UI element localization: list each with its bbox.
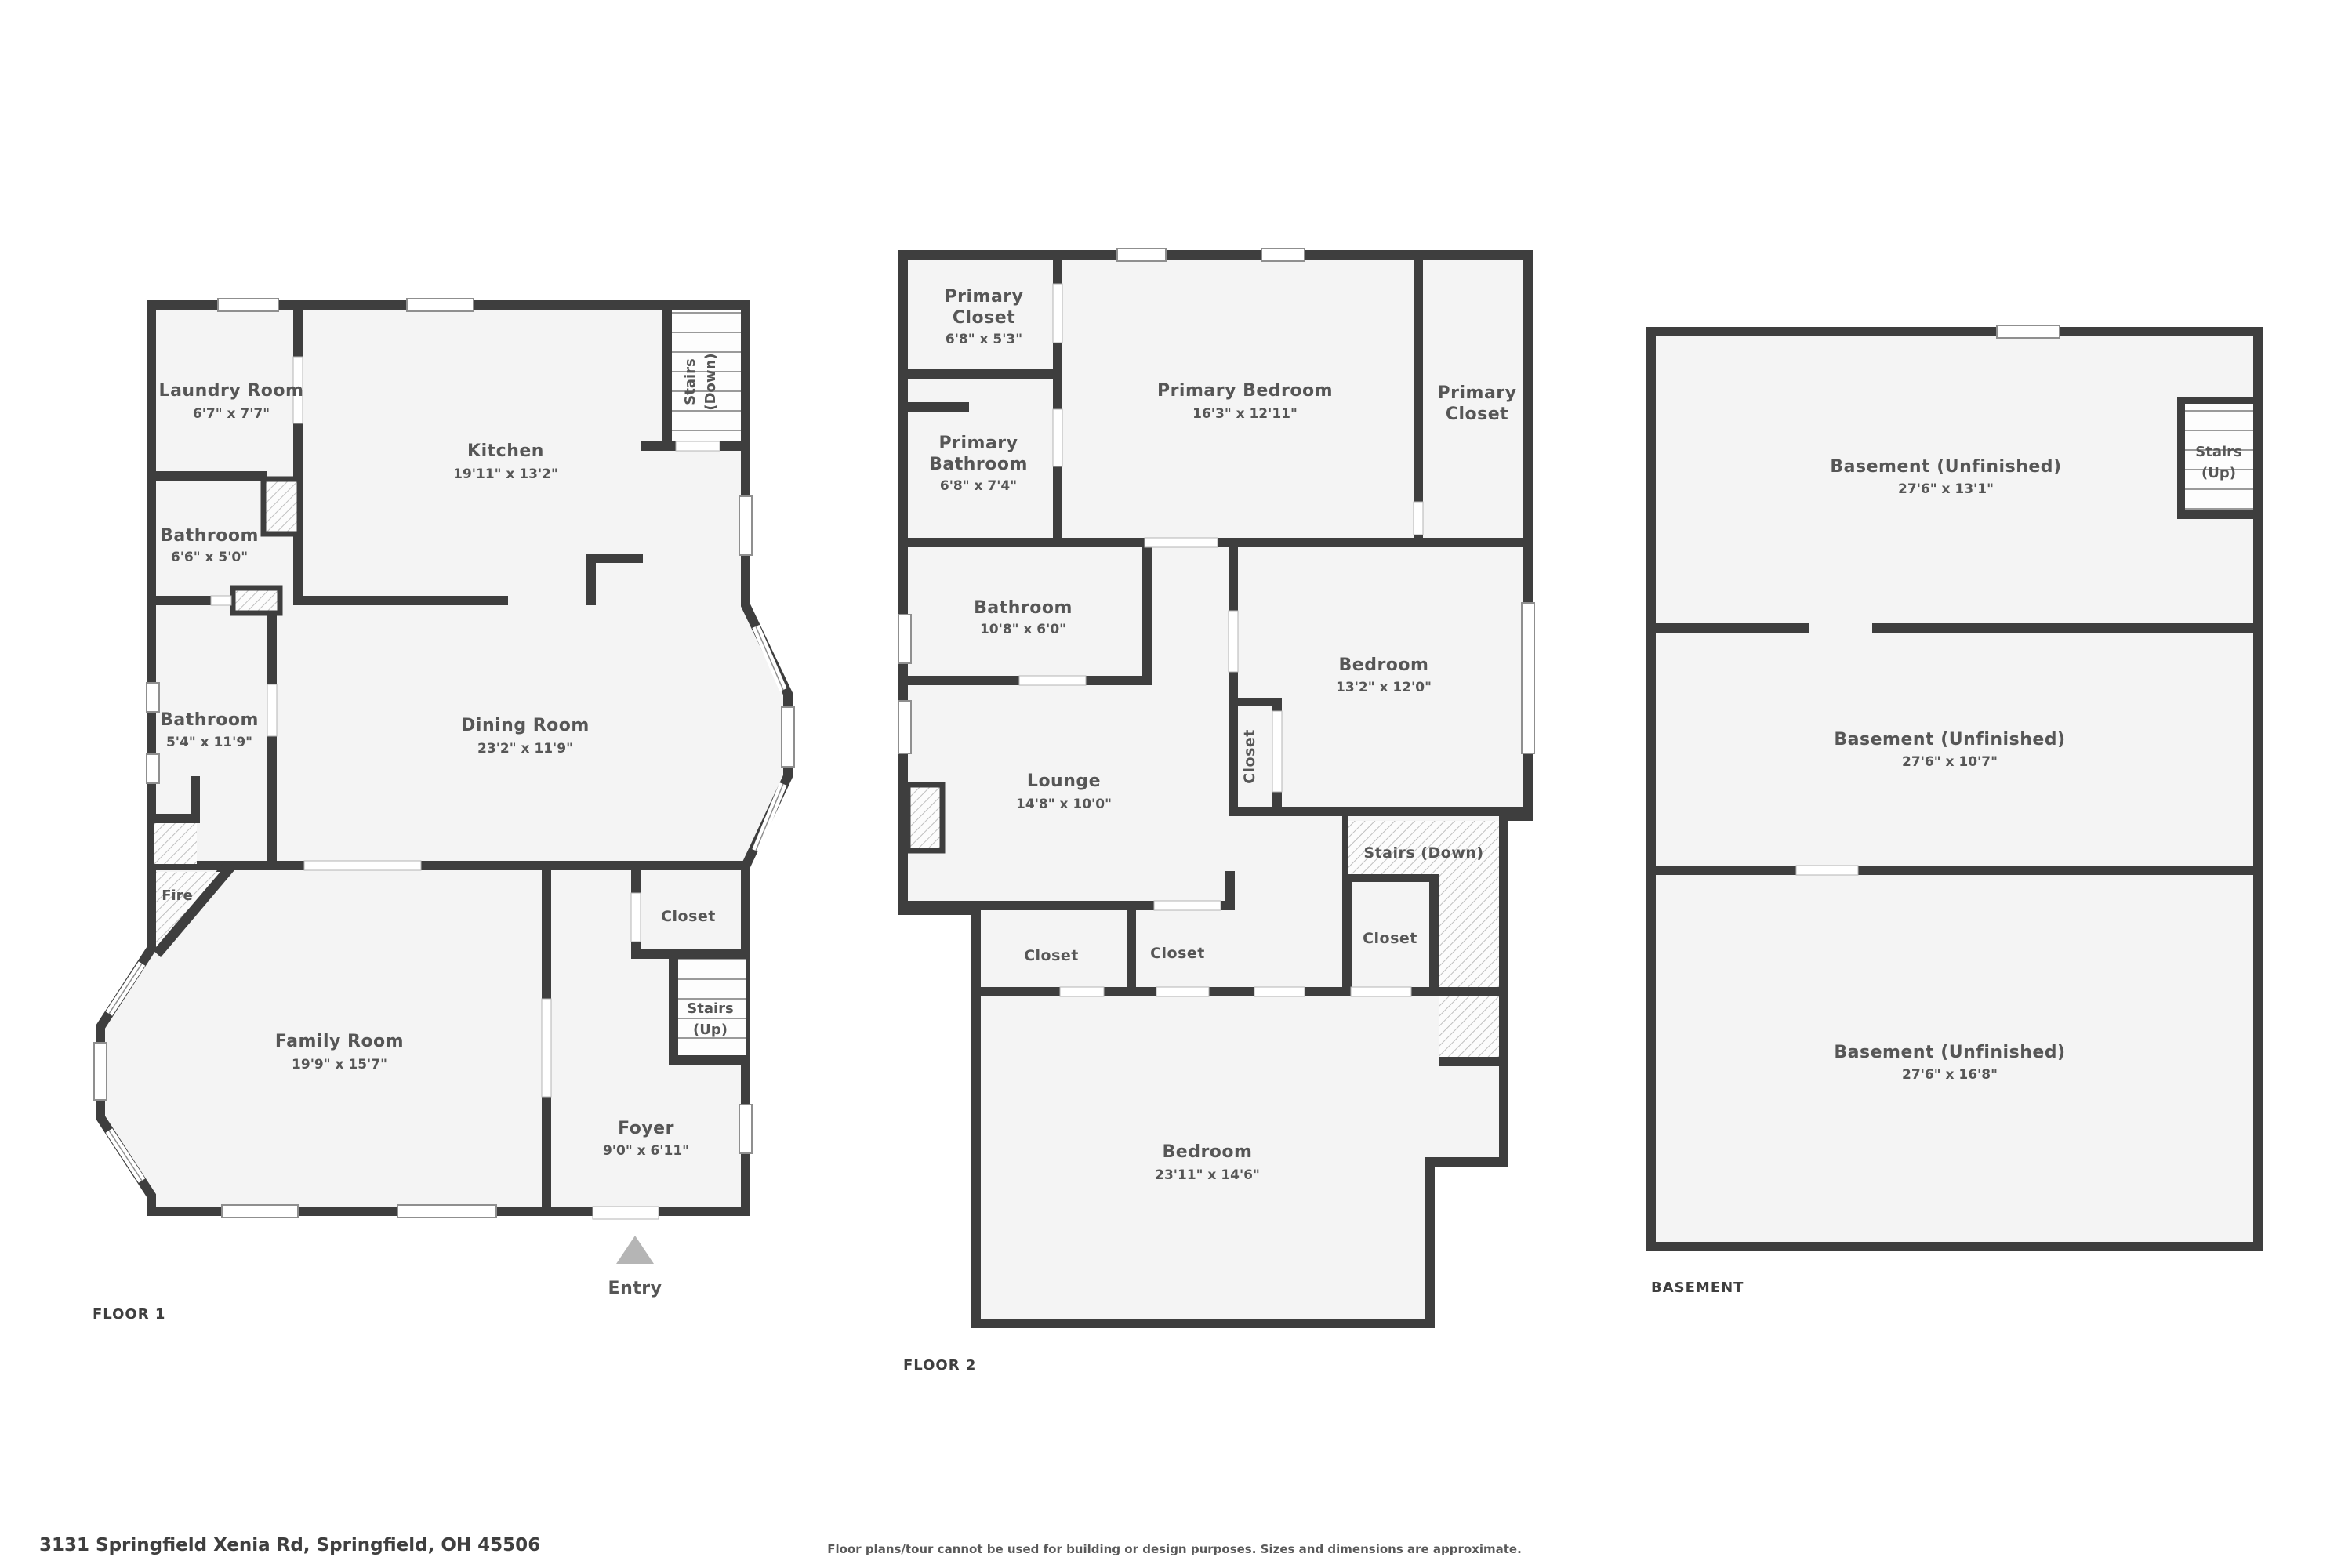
room-label-basement-bottom: Basement (Unfinished) (1834, 1043, 2065, 1062)
floorplan-basement: Basement (Unfinished) 27'6" x 13'1" Stai… (1651, 325, 2258, 1296)
fireplace-hatch (154, 823, 197, 864)
fireplace-label: Fire (162, 887, 193, 904)
chimney-hatch (263, 479, 299, 534)
closet-b-label: Closet (1150, 945, 1205, 962)
room-label-kitchen: Kitchen (467, 441, 544, 461)
entry-label: Entry (608, 1279, 662, 1298)
room-label-bathroom-small: Bathroom (160, 526, 259, 546)
room-label-foyer: Foyer (618, 1119, 674, 1138)
chimney-hatch (233, 588, 280, 613)
room-label-dining: Dining Room (461, 716, 590, 735)
room-label-family: Family Room (275, 1032, 404, 1051)
room-dims-bathroom-small: 6'6" x 5'0" (171, 550, 248, 565)
room-label-bathroom2: Bathroom (974, 598, 1073, 618)
room-dims-lounge: 14'8" x 10'0" (1016, 797, 1112, 812)
room-label-primary-closet-left: Primary (945, 287, 1024, 307)
disclaimer-text: Floor plans/tour cannot be used for buil… (827, 1542, 1522, 1556)
room-dims-foyer: 9'0" x 6'11" (603, 1143, 689, 1159)
stairs-up-label: (Up) (693, 1022, 728, 1038)
room-label-primary-closet-left: Closet (953, 308, 1015, 328)
basement-door-gaps (1796, 866, 1858, 875)
floorplan-floor1: Laundry Room 6'7" x 7'7" Kitchen 19'11" … (93, 299, 794, 1323)
room-dims-kitchen: 19'11" x 13'2" (453, 466, 558, 482)
room-label-bedroom-small: Bedroom (1339, 655, 1429, 675)
closet-label: Closet (661, 908, 716, 925)
room-dims-basement-bottom: 27'6" x 16'8" (1902, 1067, 1998, 1083)
room-dims-bathroom-long: 5'4" x 11'9" (166, 735, 252, 750)
room-dims-primary-bathroom: 6'8" x 7'4" (940, 478, 1017, 494)
room-dims-bedroom-small: 13'2" x 12'0" (1336, 680, 1432, 695)
stairs-up-label: Stairs (687, 1000, 733, 1017)
property-address: 3131 Springfield Xenia Rd, Springfield, … (39, 1535, 540, 1555)
stairs-up-label-basement: Stairs (2195, 444, 2241, 460)
chimney-hatch (908, 785, 942, 851)
room-dims-bathroom2: 10'8" x 6'0" (980, 622, 1066, 637)
closet-a-label: Closet (1024, 947, 1079, 964)
room-label-bedroom-large: Bedroom (1163, 1142, 1253, 1162)
room-dims-family: 19'9" x 15'7" (292, 1057, 387, 1073)
room-label-primary-bathroom: Bathroom (929, 455, 1028, 474)
room-label-basement-top: Basement (Unfinished) (1830, 457, 2061, 477)
floorplan-page: Laundry Room 6'7" x 7'7" Kitchen 19'11" … (0, 0, 2352, 1568)
basement-windows (1997, 325, 2060, 338)
room-dims-laundry: 6'7" x 7'7" (193, 406, 270, 422)
stairs-down-hatch (1439, 874, 1499, 987)
room-label-primary-bathroom: Primary (939, 434, 1018, 453)
floorplan-floor2: Primary Closet 6'8" x 5'3" Primary Bathr… (898, 249, 1534, 1374)
room-dims-primary-bedroom: 16'3" x 12'11" (1192, 406, 1298, 422)
room-dims-primary-closet-left: 6'8" x 5'3" (946, 332, 1022, 347)
room-dims-basement-top: 27'6" x 13'1" (1898, 481, 1994, 497)
floor1-title: FLOOR 1 (93, 1306, 165, 1323)
closet-c-label: Closet (1363, 930, 1417, 947)
entry-arrow-icon (616, 1236, 654, 1264)
room-label-primary-closet-right: Closet (1446, 405, 1508, 424)
stairs-up-label-basement: (Up) (2201, 465, 2236, 481)
stairs-down-label: Stairs (682, 358, 699, 405)
floor2-title: FLOOR 2 (903, 1357, 976, 1374)
floorplan-canvas: Laundry Room 6'7" x 7'7" Kitchen 19'11" … (0, 0, 2352, 1568)
room-label-laundry: Laundry Room (159, 381, 304, 401)
room-dims-bedroom-large: 23'11" x 14'6" (1155, 1167, 1260, 1183)
stairs-down-hatch (1439, 996, 1499, 1057)
basement-title: BASEMENT (1651, 1279, 1744, 1296)
room-label-basement-mid: Basement (Unfinished) (1834, 730, 2065, 750)
closet-side-label: Closet (1241, 729, 1258, 784)
room-dims-basement-mid: 27'6" x 10'7" (1902, 754, 1998, 770)
room-label-primary-closet-right: Primary (1438, 383, 1517, 403)
stairs-down-label: (Down) (702, 353, 719, 410)
room-label-lounge: Lounge (1027, 771, 1101, 791)
room-label-primary-bedroom: Primary Bedroom (1157, 381, 1333, 401)
room-dims-dining: 23'2" x 11'9" (477, 741, 573, 757)
room-label-bathroom-long: Bathroom (160, 710, 259, 730)
footer: 3131 Springfield Xenia Rd, Springfield, … (39, 1535, 1522, 1556)
stairs-down-label-f2: Stairs (Down) (1363, 844, 1483, 862)
